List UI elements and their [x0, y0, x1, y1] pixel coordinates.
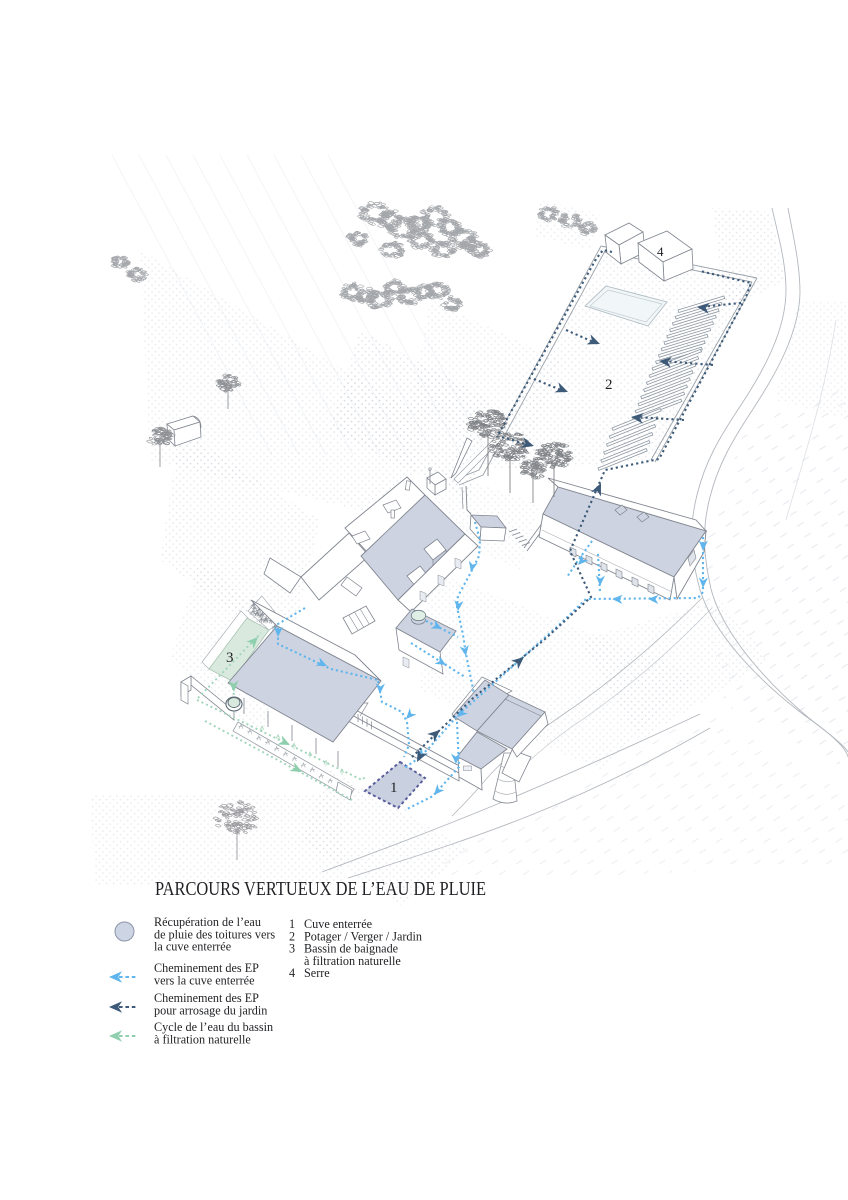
svg-text:à filtration naturelle: à filtration naturelle: [154, 1032, 251, 1046]
svg-text:3: 3: [289, 942, 295, 956]
svg-text:pour arrosage du jardin: pour arrosage du jardin: [154, 1003, 267, 1017]
svg-text:3: 3: [226, 650, 234, 666]
svg-text:4: 4: [657, 244, 664, 259]
svg-text:4: 4: [289, 966, 295, 980]
svg-text:2: 2: [605, 377, 613, 393]
svg-text:1: 1: [390, 780, 398, 796]
svg-text:PARCOURS VERTUEUX DE L’EAU DE: PARCOURS VERTUEUX DE L’EAU DE PLUIE: [155, 879, 486, 900]
svg-text:Serre: Serre: [304, 966, 330, 980]
svg-text:la cuve enterrée: la cuve enterrée: [154, 940, 231, 954]
svg-text:vers la cuve enterrée: vers la cuve enterrée: [154, 973, 254, 987]
